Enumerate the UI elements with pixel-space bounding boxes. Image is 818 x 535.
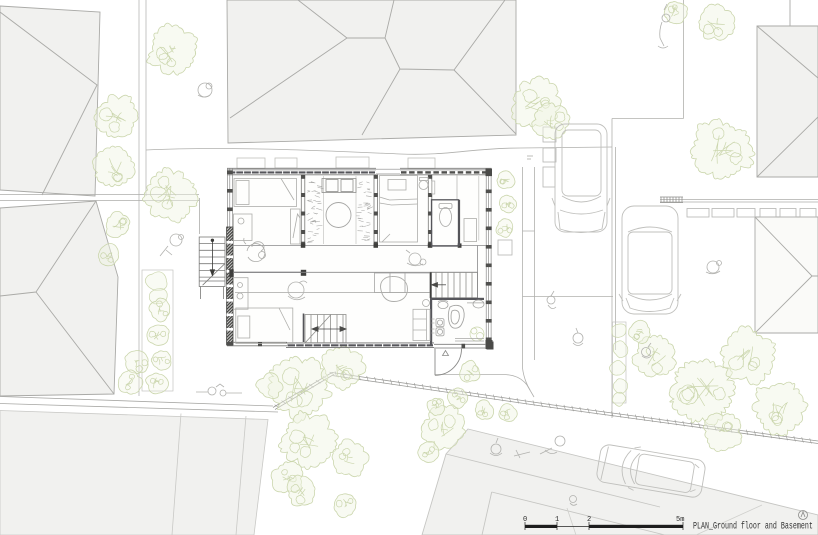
svg-text:1: 1 [555,516,559,524]
svg-text:2: 2 [587,516,591,524]
svg-text:PLAN_Ground floor and Basement: PLAN_Ground floor and Basement [693,520,813,532]
svg-text:0: 0 [523,516,527,524]
svg-text:5m: 5m [676,516,684,524]
